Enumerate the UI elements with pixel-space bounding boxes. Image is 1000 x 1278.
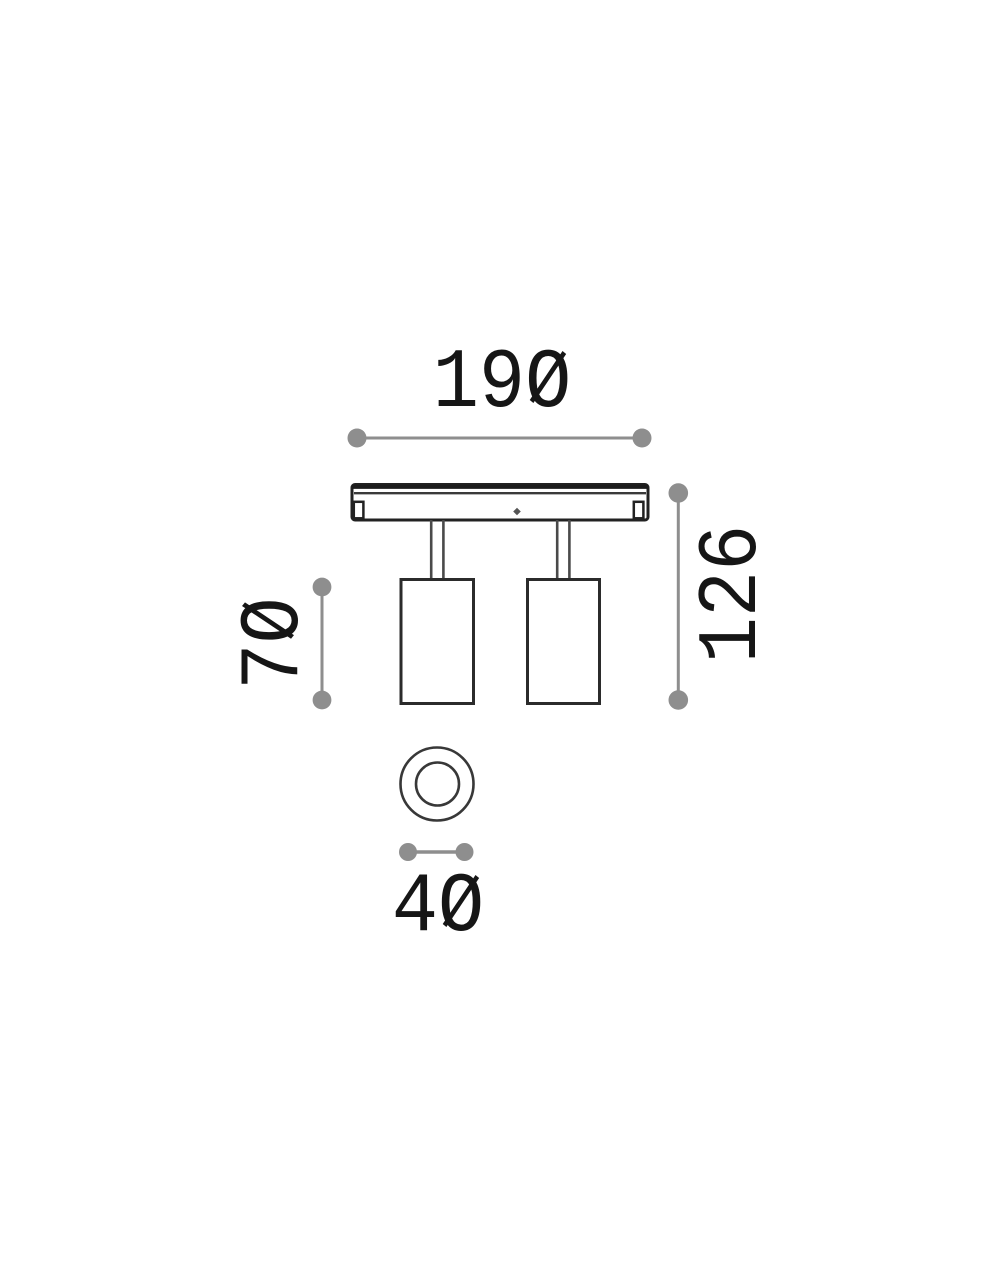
svg-text:126: 126 (686, 525, 781, 663)
svg-text:7O: 7O (228, 597, 323, 689)
svg-text:4O: 4O (392, 861, 484, 956)
svg-text:19O: 19O (433, 337, 571, 432)
